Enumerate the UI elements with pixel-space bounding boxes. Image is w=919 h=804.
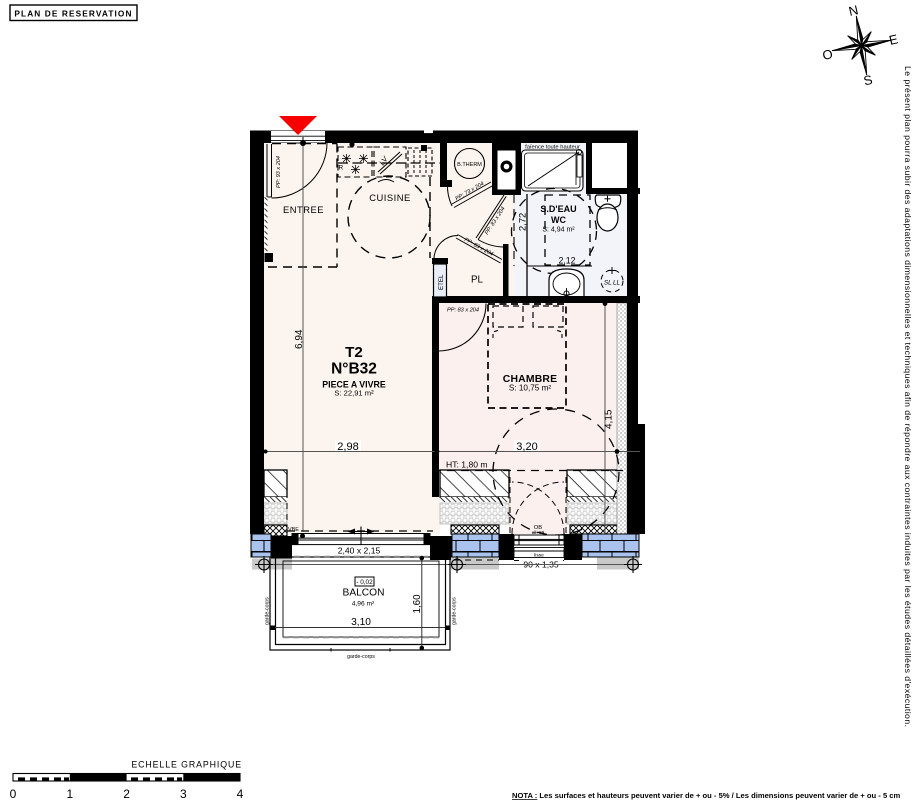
svg-text:3: 3 xyxy=(180,787,187,801)
svg-text:S: 4,94 m²: S: 4,94 m² xyxy=(542,227,575,234)
svg-text:PP: 83 x 204: PP: 83 x 204 xyxy=(447,308,479,314)
svg-text:3,10: 3,10 xyxy=(351,617,371,628)
svg-text:2,40 x 2,15: 2,40 x 2,15 xyxy=(338,546,381,556)
svg-text:WC: WC xyxy=(551,215,566,225)
svg-text:4: 4 xyxy=(237,787,244,801)
svg-text:VBE: VBE xyxy=(288,527,299,533)
svg-text:4,96 m²: 4,96 m² xyxy=(352,601,375,608)
svg-text:R: R xyxy=(339,165,344,172)
svg-text:1: 1 xyxy=(66,787,73,801)
svg-text:- 0,02: - 0,02 xyxy=(356,579,373,586)
svg-text:ECHELLE GRAPHIQUE: ECHELLE GRAPHIQUE xyxy=(131,760,242,770)
svg-text:NOTA : Les surfaces et hauteur: NOTA : Les surfaces et hauteurs peuvent … xyxy=(512,791,900,800)
svg-text:Le présent plan pourra subir d: Le présent plan pourra subir des adaptat… xyxy=(903,66,913,727)
svg-text:6,94: 6,94 xyxy=(294,329,305,349)
svg-text:2,72: 2,72 xyxy=(517,213,528,231)
svg-text:CUISINE: CUISINE xyxy=(369,192,411,203)
svg-text:2,98: 2,98 xyxy=(337,441,358,453)
svg-text:2,12: 2,12 xyxy=(558,256,575,266)
svg-text:garde-corps: garde-corps xyxy=(265,597,271,625)
svg-text:0: 0 xyxy=(10,787,17,801)
svg-text:PL: PL xyxy=(471,275,484,286)
svg-text:S: 10,75 m²: S: 10,75 m² xyxy=(509,383,552,392)
svg-text:B.THERM: B.THERM xyxy=(457,162,482,168)
svg-text:garde-corps: garde-corps xyxy=(452,597,458,625)
svg-text:all. 80: all. 80 xyxy=(532,530,545,535)
svg-text:S: 22,91 m²: S: 22,91 m² xyxy=(334,389,374,398)
svg-text:garde-corps: garde-corps xyxy=(347,654,375,660)
svg-text:PP: 93 x 204: PP: 93 x 204 xyxy=(276,156,282,188)
svg-text:3,20: 3,20 xyxy=(516,441,537,453)
svg-text:2: 2 xyxy=(123,787,130,801)
svg-text:N°B32: N°B32 xyxy=(331,361,377,378)
svg-text:SL LL: SL LL xyxy=(604,280,621,287)
svg-text:faïence toute hauteur: faïence toute hauteur xyxy=(525,145,580,151)
svg-text:lisse: lisse xyxy=(534,553,544,559)
svg-text:HT: 1,80 m: HT: 1,80 m xyxy=(446,460,488,470)
svg-text:BALCON: BALCON xyxy=(343,588,385,599)
svg-text:S.D'EAU: S.D'EAU xyxy=(540,204,576,214)
svg-text:1,60: 1,60 xyxy=(412,594,423,614)
svg-text:4,15: 4,15 xyxy=(604,409,615,429)
svg-text:ETEL: ETEL xyxy=(438,274,445,290)
svg-text:PLAN DE RESERVATION: PLAN DE RESERVATION xyxy=(14,8,132,18)
svg-text:T2: T2 xyxy=(345,344,363,361)
